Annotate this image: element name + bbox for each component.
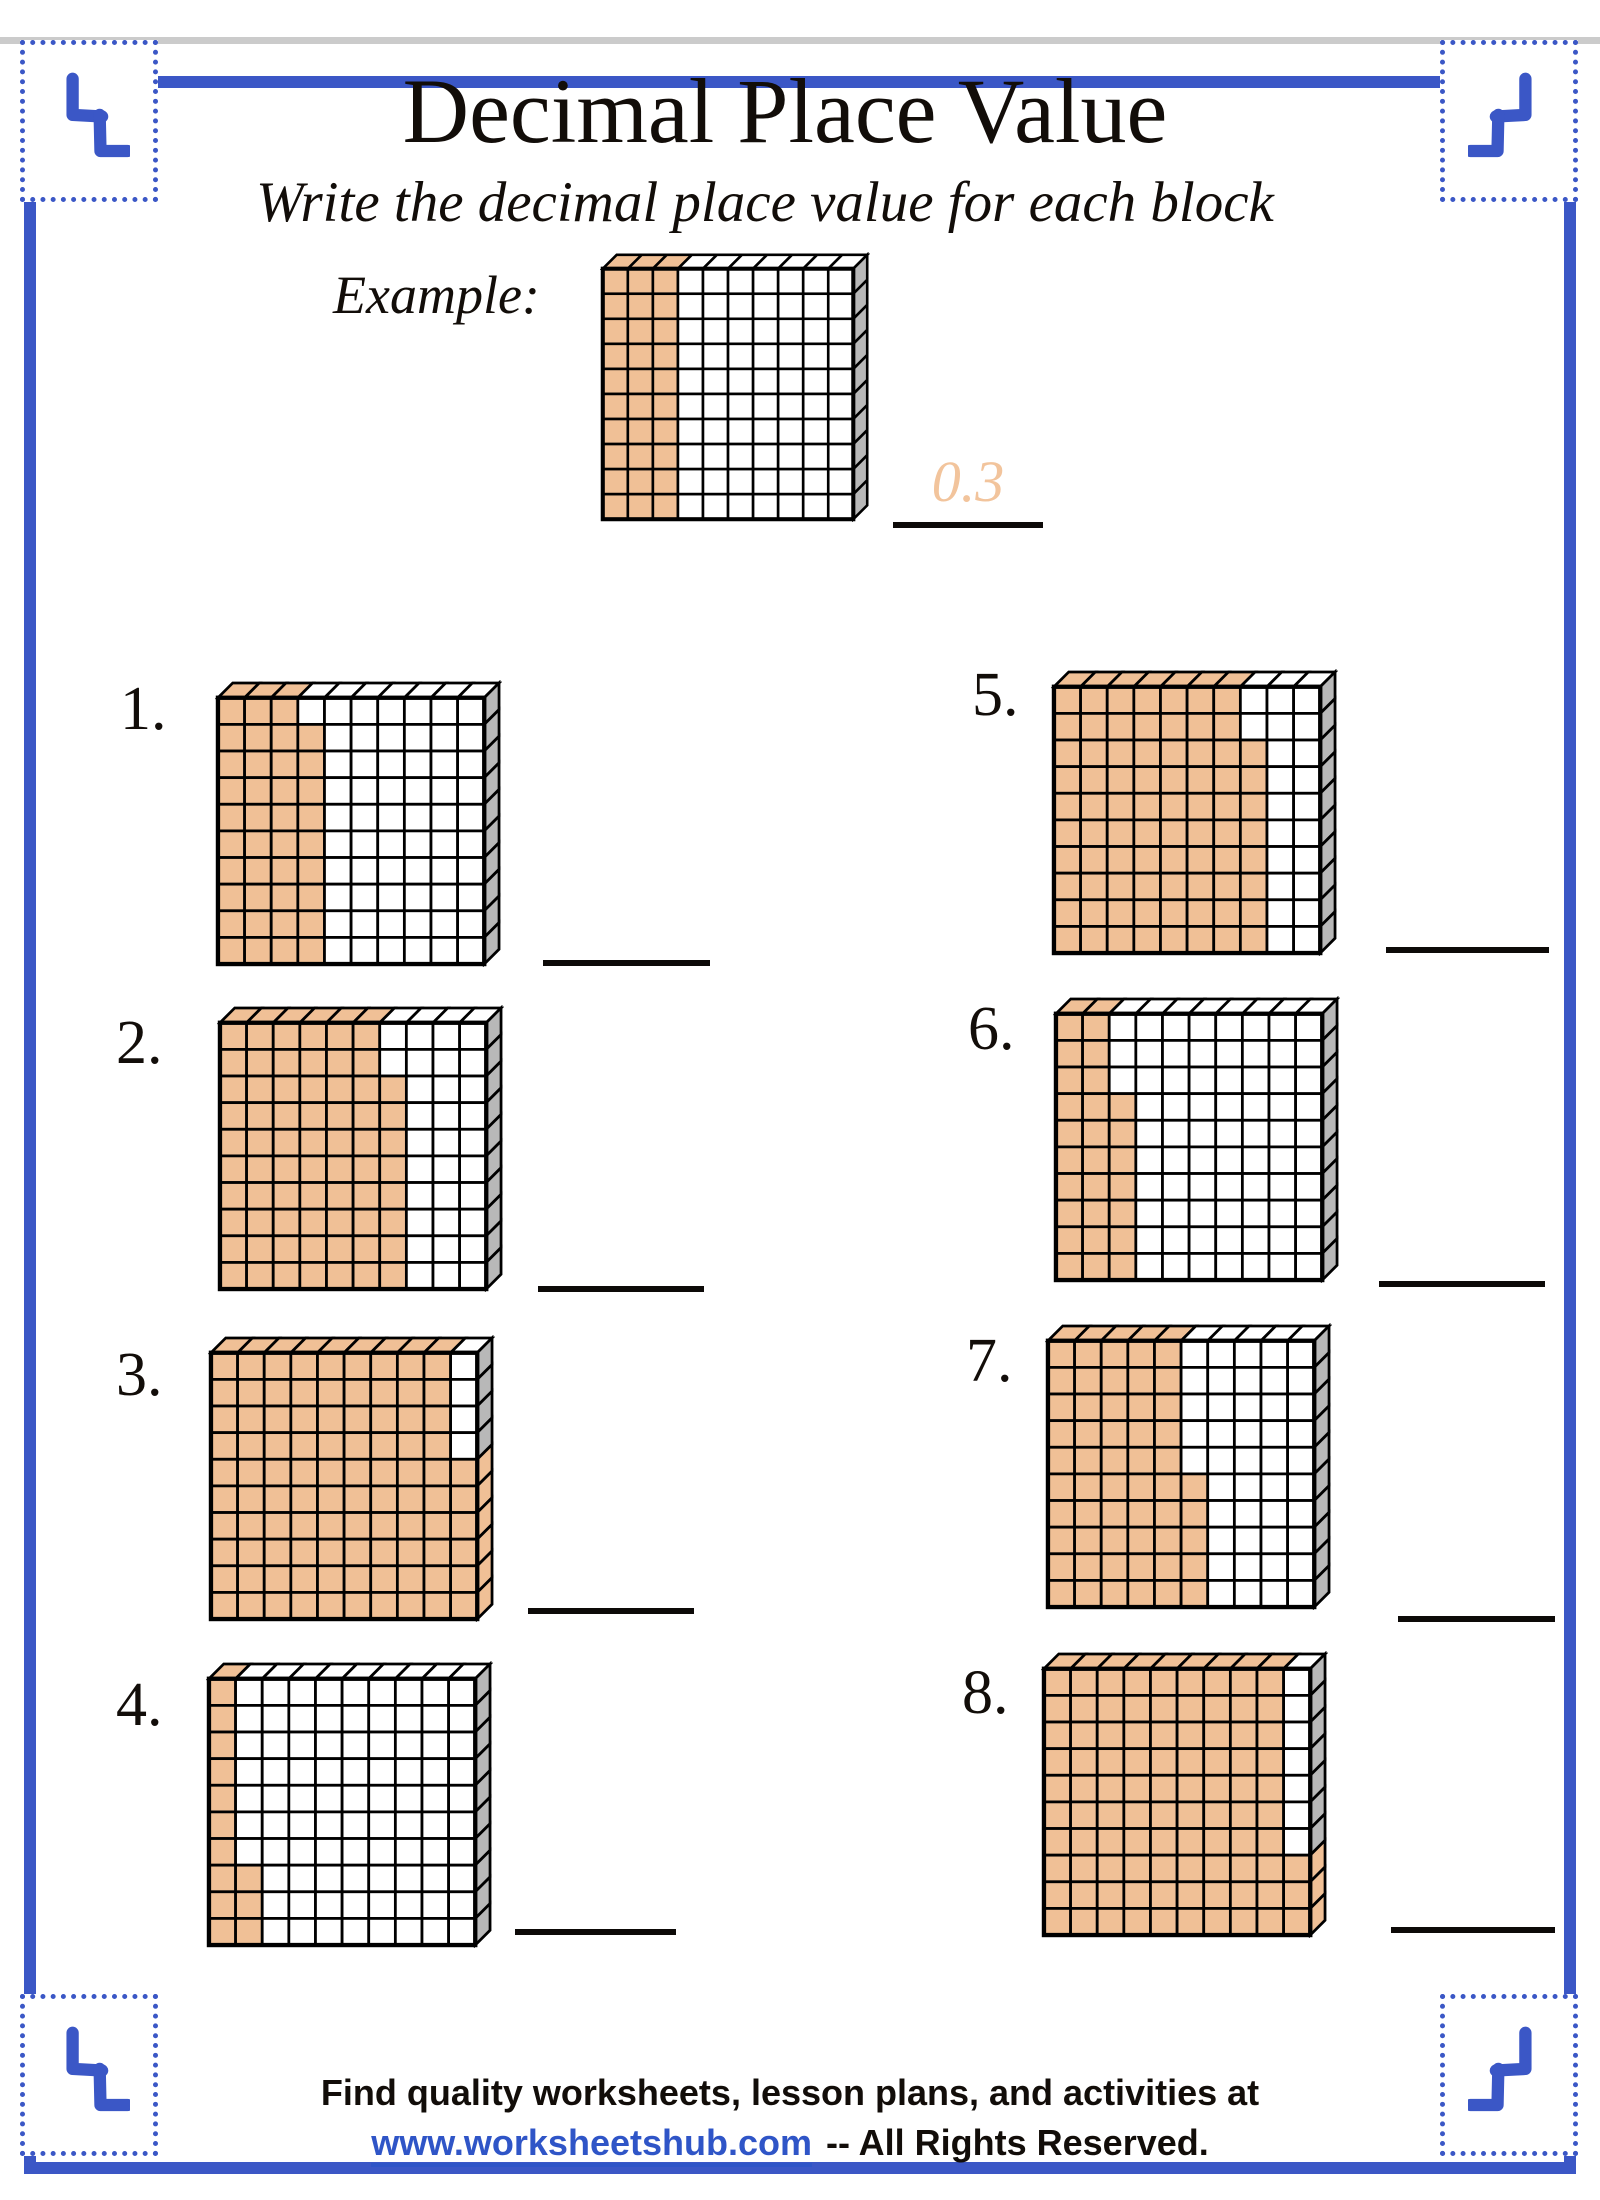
worksheet-page: Decimal Place Value Write the decimal pl… [0,0,1600,2200]
corner-stamp-top-left [20,40,158,202]
footer-line1: Find quality worksheets, lesson plans, a… [0,2068,1580,2118]
footer: Find quality worksheets, lesson plans, a… [0,2068,1580,2167]
worksheetshub-logo-icon [48,65,130,178]
worksheetshub-logo-icon [1468,65,1550,178]
footer-line2: www.worksheetshub.com-- All Rights Reser… [0,2118,1580,2168]
worksheetshub-link[interactable]: www.worksheetshub.com [371,2122,812,2167]
page-subtitle: Write the decimal place value for each b… [0,170,1530,235]
worksheetshub-logo-icon [1468,2019,1550,2132]
corner-stamp-bottom-right [1440,1994,1578,2156]
footer-rights-text: -- All Rights Reserved. [826,2122,1209,2163]
page-title: Decimal Place Value [0,58,1570,164]
page-top-edge [0,37,1600,44]
worksheetshub-logo-icon [48,2019,130,2132]
page-border-frame [24,76,1576,2174]
corner-stamp-top-right [1440,40,1578,202]
corner-stamp-bottom-left [20,1994,158,2156]
